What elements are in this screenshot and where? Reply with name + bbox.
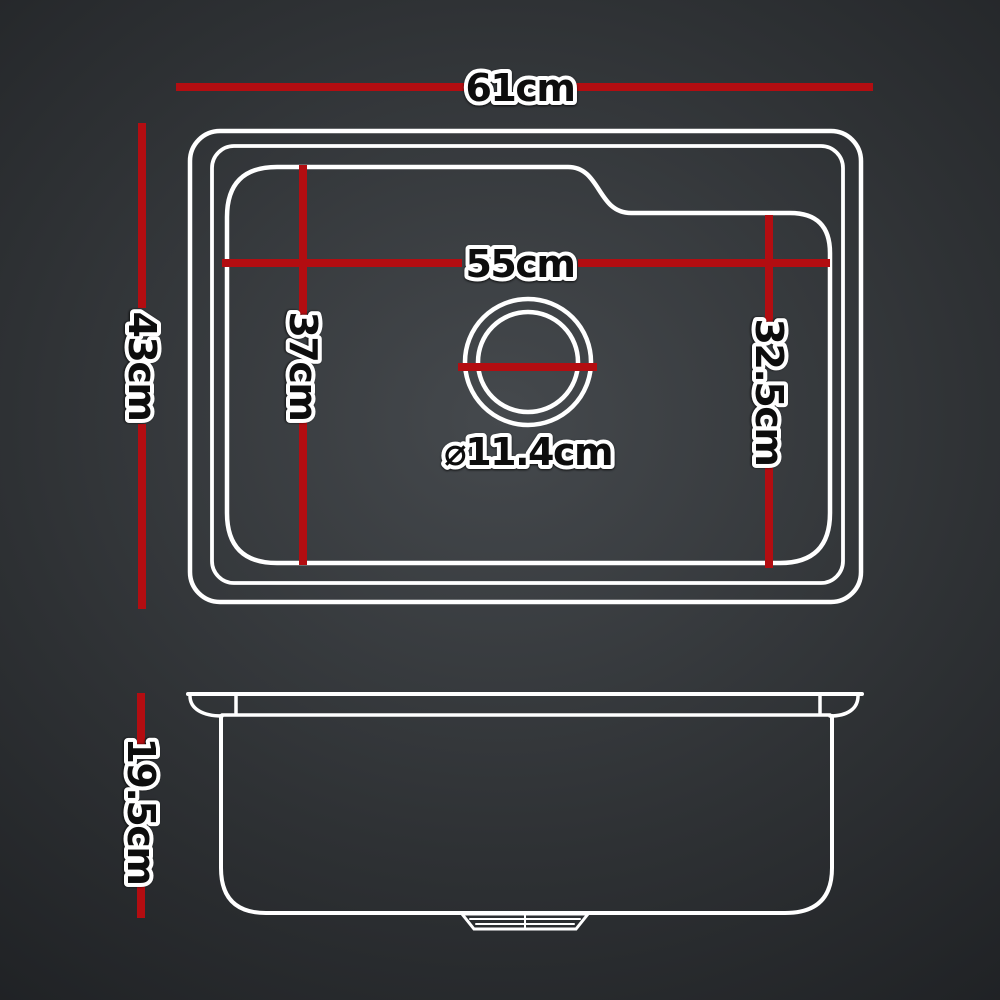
sink-dimension-diagram: { "labels": { "top_width": "61cm", "top_…	[0, 0, 1000, 1000]
label-side-height: 19.5cm	[119, 738, 163, 885]
side-view	[188, 694, 862, 929]
dimension-bowl-depth-right: 32.5cm	[747, 215, 791, 568]
label-bowl-depth-left: 37cm	[281, 311, 325, 420]
label-drain-diameter: ⌀11.4cm	[444, 430, 612, 474]
side-drain-fitting	[462, 914, 588, 929]
dimension-overall-width: 61cm	[176, 66, 873, 110]
label-bowl-depth-right: 32.5cm	[747, 319, 791, 466]
side-lip-right	[830, 696, 858, 716]
dimension-bowl-depth-left: 37cm	[281, 165, 325, 565]
side-bowl-body	[221, 716, 832, 913]
drain-outer-circle	[465, 299, 591, 425]
label-overall-width: 61cm	[465, 66, 574, 110]
label-overall-depth: 43cm	[120, 311, 164, 420]
diagram-canvas: 61cm 43cm 55cm 37cm 32.5cm ⌀11.4cm	[0, 0, 1000, 1000]
label-bowl-width: 55cm	[465, 242, 574, 286]
dimension-side-height: 19.5cm	[119, 693, 163, 918]
dimension-overall-depth: 43cm	[120, 123, 164, 609]
drain-inner-circle	[478, 312, 578, 412]
side-lip-left	[190, 696, 222, 716]
dimension-bowl-width: 55cm	[222, 242, 830, 286]
